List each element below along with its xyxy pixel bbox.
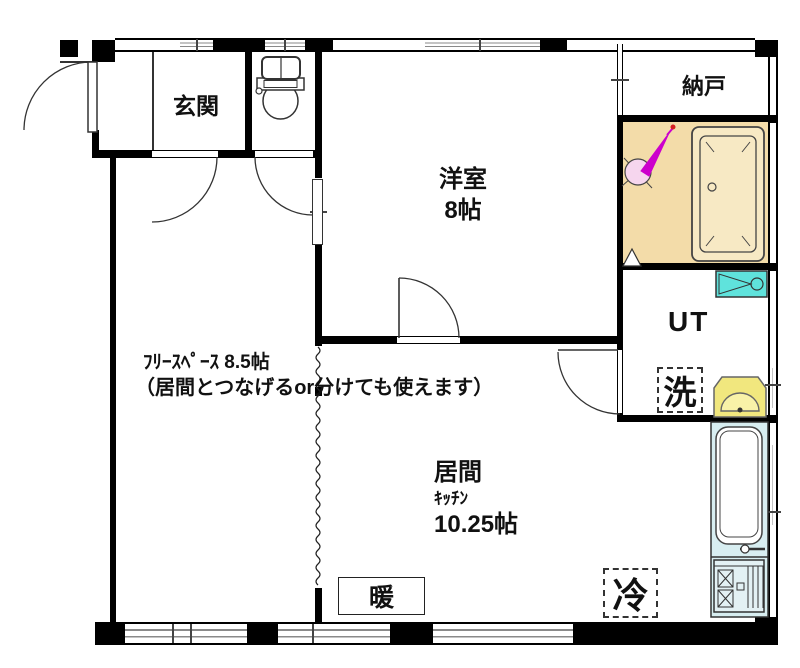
stove-icon: [714, 560, 764, 612]
toilet-handle: [256, 88, 262, 94]
vanity-icon: [716, 271, 767, 297]
door-panel: [312, 179, 323, 245]
entrance-door-arc: [24, 62, 92, 130]
bathtub-outer: [692, 127, 764, 261]
fridge-label: 冷: [612, 567, 648, 619]
freespace-note: （居間とつなげるor分けても使えます）: [135, 371, 493, 400]
bath-door-marker: [623, 249, 641, 266]
kitchen-sink: [716, 427, 762, 544]
living-size: 10.25帖: [434, 504, 518, 539]
washer-box: 洗: [657, 367, 703, 413]
washbasin-drain: [738, 408, 743, 413]
freespace-label: ﾌﾘｰｽﾍﾟｰｽ 8.5帖: [143, 347, 270, 374]
toilet-icon: [256, 57, 304, 119]
yoshitsu-label: 洋室: [428, 159, 498, 194]
shower-arm: [641, 133, 669, 176]
nando-label: 納戸: [682, 69, 726, 101]
kitchen-unit: [711, 422, 768, 617]
heater-label: 暖: [369, 578, 394, 614]
washbasin-icon: [714, 377, 766, 417]
washer-label: 洗: [664, 366, 697, 414]
living-label: 居間: [434, 452, 482, 487]
yoshitsu-size: 8帖: [428, 190, 498, 225]
toilet-base-inner: [264, 81, 297, 88]
bathtub-icon: [692, 127, 764, 261]
fridge-box: 冷: [603, 568, 658, 618]
shower-icon: [622, 125, 676, 189]
vanity-body: [716, 271, 767, 297]
shower-tip: [671, 125, 676, 130]
ut-door-arc: [558, 352, 620, 414]
floorplan: 玄関 納戸 洋室 8帖 UT ﾌﾘｰｽﾍﾟｰｽ 8.5帖 （居間とつなげるor分…: [0, 0, 800, 668]
toilet-door-arc: [255, 157, 313, 215]
heater-box: 暖: [338, 577, 425, 615]
hall-door-arc: [152, 157, 217, 222]
ut-label: UT: [668, 306, 709, 338]
entrance-door-leaf: [88, 62, 97, 132]
kitchen-faucet-base: [741, 545, 749, 553]
genkan-label: 玄関: [173, 87, 219, 121]
bedroom-door-arc: [399, 278, 459, 338]
